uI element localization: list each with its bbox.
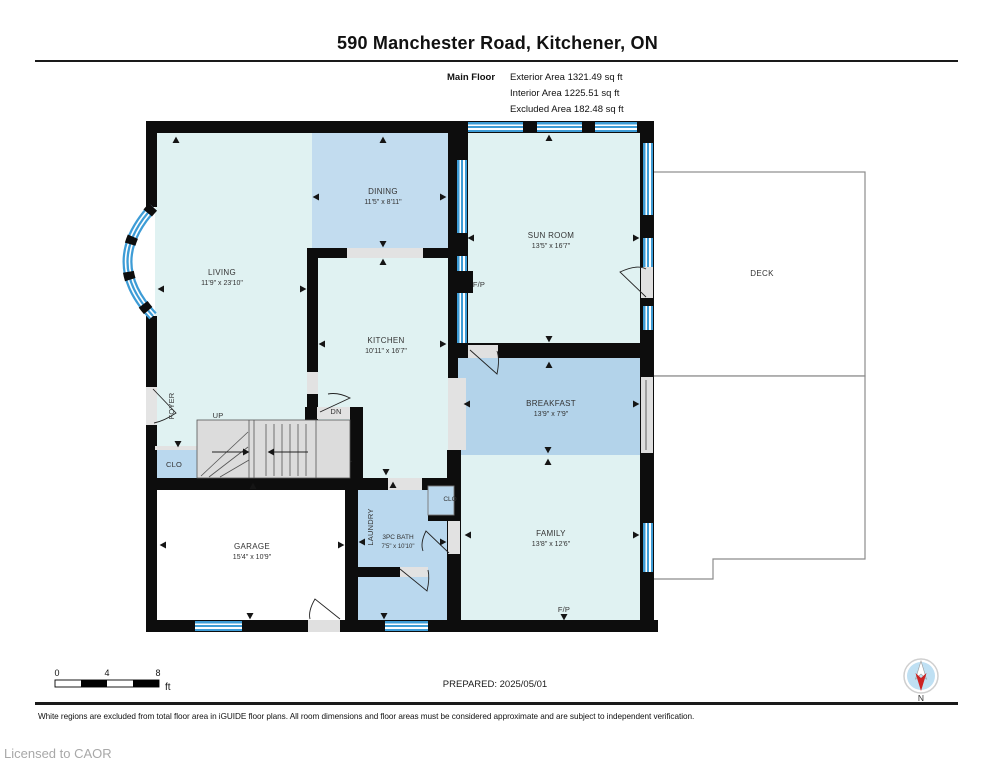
fp-sunroom-label: F/P (473, 280, 485, 289)
scale-unit: ft (165, 682, 171, 693)
bath-label: 3PC BATH (382, 534, 414, 541)
bay-window (128, 207, 154, 316)
dn-label: DN (330, 407, 341, 416)
license-text: Licensed to CAOR (4, 746, 112, 761)
disclaimer-text: White regions are excluded from total fl… (38, 712, 968, 721)
floorplan-drawing: LIVING 11'9" x 23'10" DINING 11'5" x 8'1… (0, 0, 995, 768)
living-dims: 11'9" x 23'10" (201, 280, 243, 287)
garage-label: GARAGE (234, 542, 270, 551)
prepared-date: PREPARED: 2025/05/01 (415, 679, 575, 690)
room-family (458, 455, 644, 622)
sunroom-dims: 13'5" x 16'7" (532, 243, 571, 250)
dining-dims: 11'5" x 8'11" (364, 199, 402, 206)
compass-icon: N (904, 659, 938, 703)
sunroom-label: SUN ROOM (528, 231, 574, 240)
stairs (197, 420, 350, 478)
bath-dims: 7'5" x 10'10" (382, 544, 415, 550)
breakfast-label: BREAKFAST (526, 399, 576, 408)
scale-tick-8: 8 (155, 668, 160, 678)
kitchen-dims: 10'11" x 16'7" (365, 348, 407, 355)
deck-label: DECK (750, 269, 774, 278)
laundry-label: LAUNDRY (366, 508, 375, 545)
scale-tick-0: 0 (54, 668, 59, 678)
breakfast-dims: 13'9" x 7'9" (534, 411, 569, 418)
kitchen-label: KITCHEN (367, 336, 404, 345)
garage-dims: 15'4" x 10'9" (233, 554, 272, 561)
scale-tick-4: 4 (104, 668, 109, 678)
living-label: LIVING (208, 268, 236, 277)
family-label: FAMILY (536, 529, 566, 538)
fp-family-label: F/P (558, 605, 570, 614)
clo-bath-label: CLO (443, 496, 456, 503)
dining-label: DINING (368, 187, 398, 196)
scale-bar: 0 4 8 ft (54, 668, 170, 693)
foyer-label: FOYER (167, 392, 176, 419)
up-label: UP (213, 411, 224, 420)
clo-foyer-label: CLO (166, 460, 182, 469)
deck-outline (648, 172, 865, 579)
footer-divider (35, 702, 958, 705)
family-dims: 13'8" x 12'6" (532, 541, 571, 548)
floorplan-page: 590 Manchester Road, Kitchener, ON Main … (0, 0, 995, 768)
